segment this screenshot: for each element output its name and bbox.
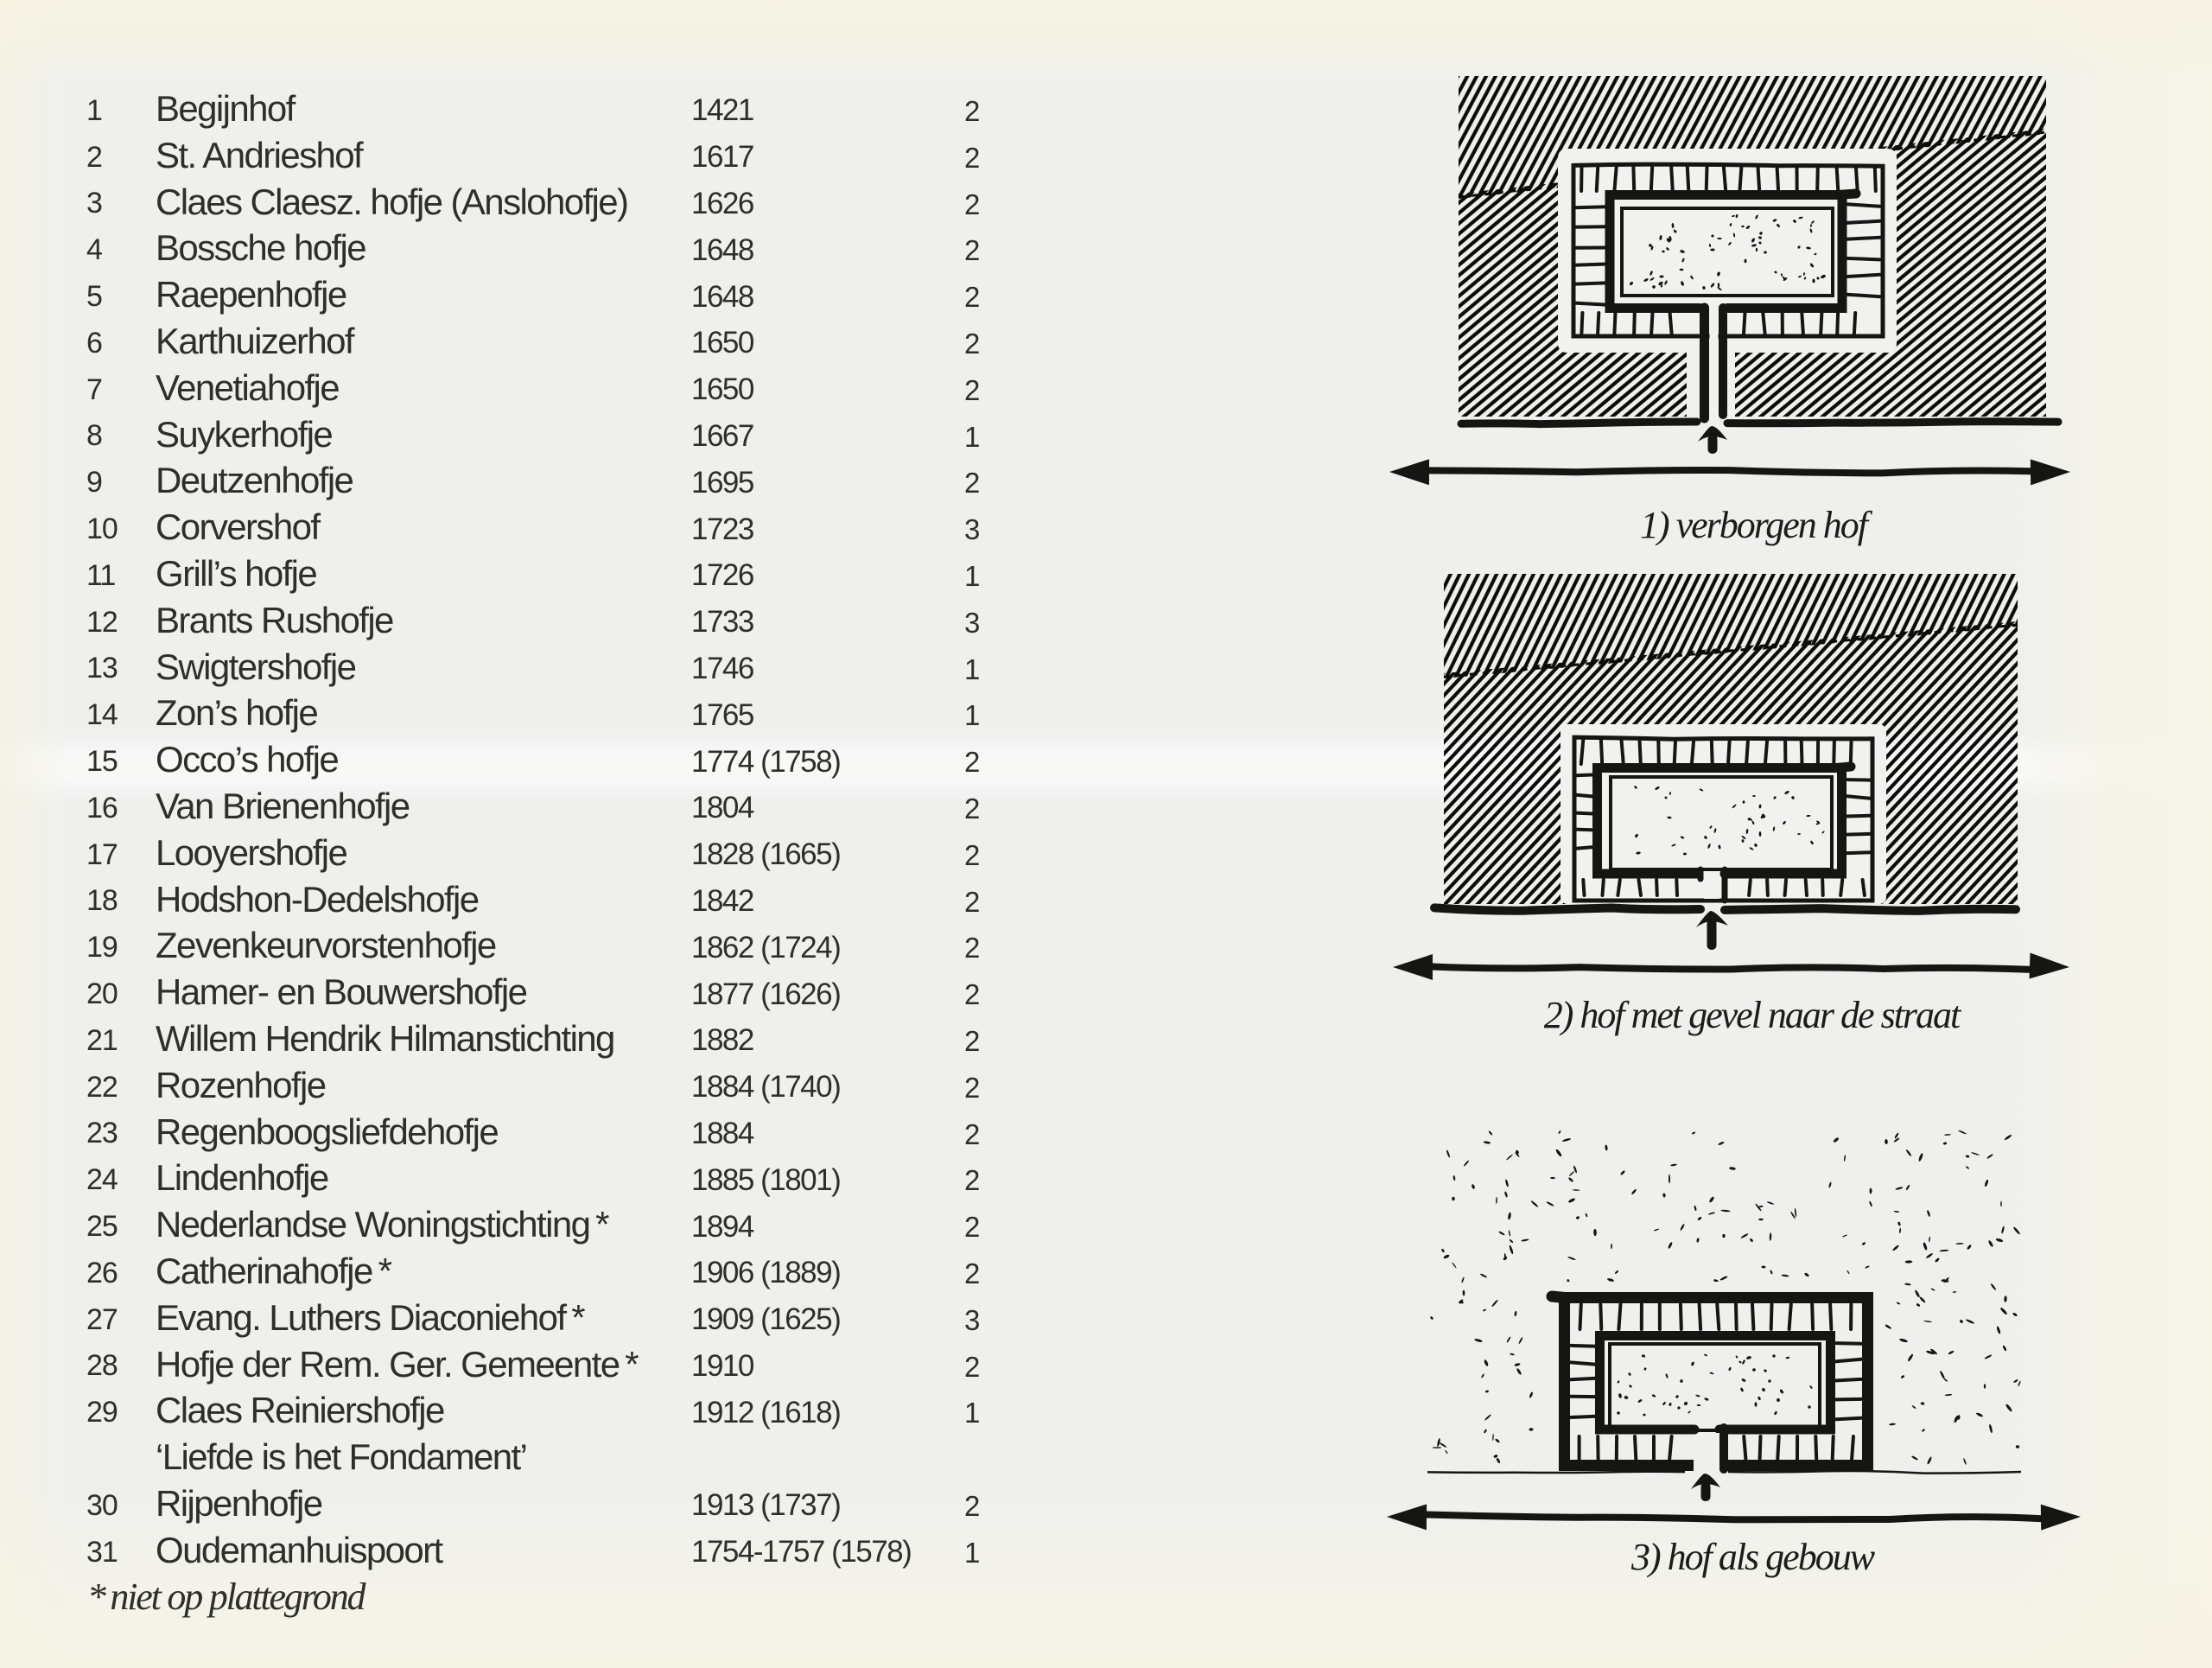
svg-text:2) hof met gevel naar de straa: 2) hof met gevel naar de straat (1544, 994, 1962, 1036)
svg-text:3) hof als gebouw: 3) hof als gebouw (1630, 1536, 1876, 1578)
svg-text:1) verborgen hof: 1) verborgen hof (1640, 504, 1873, 546)
